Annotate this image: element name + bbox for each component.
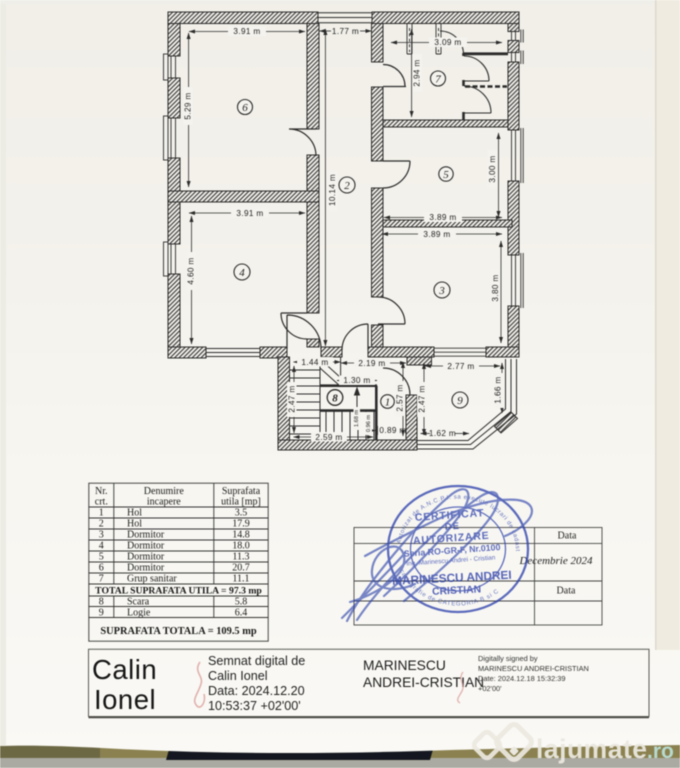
- svg-text:2.47 m: 2.47 m: [418, 385, 427, 412]
- svg-text:2.59 m: 2.59 m: [315, 433, 342, 442]
- svg-text:Scara: Scara: [127, 596, 150, 607]
- svg-text:1: 1: [99, 508, 104, 519]
- svg-text:3.89 m: 3.89 m: [429, 213, 456, 222]
- svg-text:6: 6: [242, 102, 248, 114]
- svg-text:1.62 m: 1.62 m: [429, 429, 456, 438]
- svg-text:9: 9: [99, 607, 104, 618]
- svg-text:3.00 m: 3.00 m: [488, 155, 497, 182]
- svg-text:Hol: Hol: [127, 519, 142, 530]
- svg-text:Nr.: Nr.: [95, 486, 108, 497]
- svg-text:3.80 m: 3.80 m: [491, 274, 500, 301]
- svg-text:10.14 m: 10.14 m: [328, 174, 337, 206]
- svg-text:4: 4: [239, 267, 245, 279]
- svg-text:MARINESCU ANDREI-CRISTIAN: MARINESCU ANDREI-CRISTIAN: [478, 664, 589, 673]
- svg-text:Logie: Logie: [127, 607, 151, 618]
- svg-text:17.9: 17.9: [232, 519, 250, 530]
- svg-text:3.91 m: 3.91 m: [236, 209, 263, 218]
- svg-text:5.29 m: 5.29 m: [184, 92, 193, 119]
- svg-text:Date: 2024.12.18 15:32:39: Date: 2024.12.18 15:32:39: [478, 674, 566, 683]
- svg-text:1.30 m: 1.30 m: [343, 376, 370, 385]
- svg-text:Hol: Hol: [127, 508, 142, 519]
- svg-text:2: 2: [344, 180, 350, 192]
- svg-text:4.60 m: 4.60 m: [187, 257, 196, 284]
- svg-text:10:53:37 +02'00': 10:53:37 +02'00': [208, 699, 301, 713]
- svg-text:9: 9: [457, 395, 463, 407]
- svg-text:1.44 m: 1.44 m: [301, 358, 328, 367]
- svg-text:5.8: 5.8: [235, 596, 248, 607]
- svg-text:MARINESCU: MARINESCU: [363, 658, 446, 673]
- svg-text:ANDREI-CRISTIAN: ANDREI-CRISTIAN: [363, 675, 484, 690]
- svg-text:+02'00': +02'00': [478, 684, 502, 693]
- svg-text:0.96 m: 0.96 m: [366, 415, 372, 432]
- svg-text:2.47 m: 2.47 m: [288, 385, 297, 412]
- svg-text:Calin: Calin: [92, 654, 157, 685]
- svg-text:0.89 m: 0.89 m: [379, 426, 406, 435]
- svg-text:utila [mp]: utila [mp]: [221, 497, 261, 508]
- svg-text:1.66 m: 1.66 m: [494, 376, 503, 403]
- svg-text:11.3: 11.3: [232, 552, 249, 563]
- svg-text:5: 5: [99, 552, 104, 563]
- svg-text:3: 3: [99, 530, 104, 541]
- svg-text:20.7: 20.7: [232, 563, 250, 574]
- svg-text:4: 4: [99, 541, 104, 552]
- svg-text:SUPRAFATA TOTALA = 109.5 mp: SUPRAFATA TOTALA = 109.5 mp: [100, 626, 257, 637]
- svg-text:14.8: 14.8: [232, 530, 250, 541]
- svg-text:1.77 m: 1.77 m: [332, 27, 359, 36]
- svg-text:1.68 m: 1.68 m: [354, 410, 360, 427]
- svg-text:2.19 m: 2.19 m: [358, 359, 385, 368]
- svg-text:2: 2: [99, 519, 104, 530]
- svg-text:7: 7: [435, 73, 441, 85]
- svg-text:1: 1: [385, 396, 391, 408]
- svg-text:8: 8: [332, 392, 338, 404]
- svg-text:2.57 m: 2.57 m: [396, 384, 405, 411]
- svg-text:7: 7: [99, 574, 104, 585]
- svg-text:crt.: crt.: [95, 497, 108, 508]
- svg-text:Ionel: Ionel: [94, 684, 156, 715]
- svg-text:3.5: 3.5: [235, 508, 248, 519]
- svg-text:Denumire: Denumire: [144, 486, 185, 497]
- svg-text:TOTAL SUPRAFATA UTILA = 97.3 m: TOTAL SUPRAFATA UTILA = 97.3 mp: [95, 585, 262, 596]
- svg-text:6.4: 6.4: [235, 607, 248, 618]
- svg-text:.ro: .ro: [647, 740, 674, 763]
- svg-text:3.89 m: 3.89 m: [423, 230, 450, 239]
- svg-text:Data: 2024.12.20: Data: 2024.12.20: [208, 684, 305, 698]
- svg-text:Dormitor: Dormitor: [127, 552, 165, 563]
- svg-text:18.0: 18.0: [232, 541, 250, 552]
- svg-text:Calin Ionel: Calin Ionel: [208, 669, 268, 683]
- svg-text:Dormitor: Dormitor: [127, 541, 165, 552]
- svg-text:6: 6: [99, 563, 104, 574]
- svg-text:incapere: incapere: [147, 497, 181, 508]
- svg-text:lajumate: lajumate: [536, 734, 648, 764]
- svg-text:Semnat digital de: Semnat digital de: [208, 654, 305, 668]
- svg-text:Digitally signed by: Digitally signed by: [478, 654, 538, 663]
- svg-text:2.94 m: 2.94 m: [413, 59, 422, 86]
- svg-text:Data: Data: [557, 586, 576, 597]
- svg-text:3: 3: [438, 285, 445, 297]
- svg-text:3.09 m: 3.09 m: [434, 38, 461, 47]
- svg-text:Grup sanitar: Grup sanitar: [127, 574, 177, 585]
- svg-text:11.1: 11.1: [232, 574, 249, 585]
- svg-text:Data: Data: [558, 531, 577, 542]
- svg-text:5: 5: [443, 169, 449, 181]
- svg-text:8: 8: [99, 596, 104, 607]
- svg-text:Suprafata: Suprafata: [222, 486, 261, 497]
- svg-text:2.77 m: 2.77 m: [447, 362, 474, 371]
- svg-text:Decembrie 2024: Decembrie 2024: [518, 555, 593, 567]
- svg-text:Dormitor: Dormitor: [127, 563, 165, 574]
- svg-text:3.91 m: 3.91 m: [233, 27, 260, 36]
- svg-text:Dormitor: Dormitor: [127, 530, 165, 541]
